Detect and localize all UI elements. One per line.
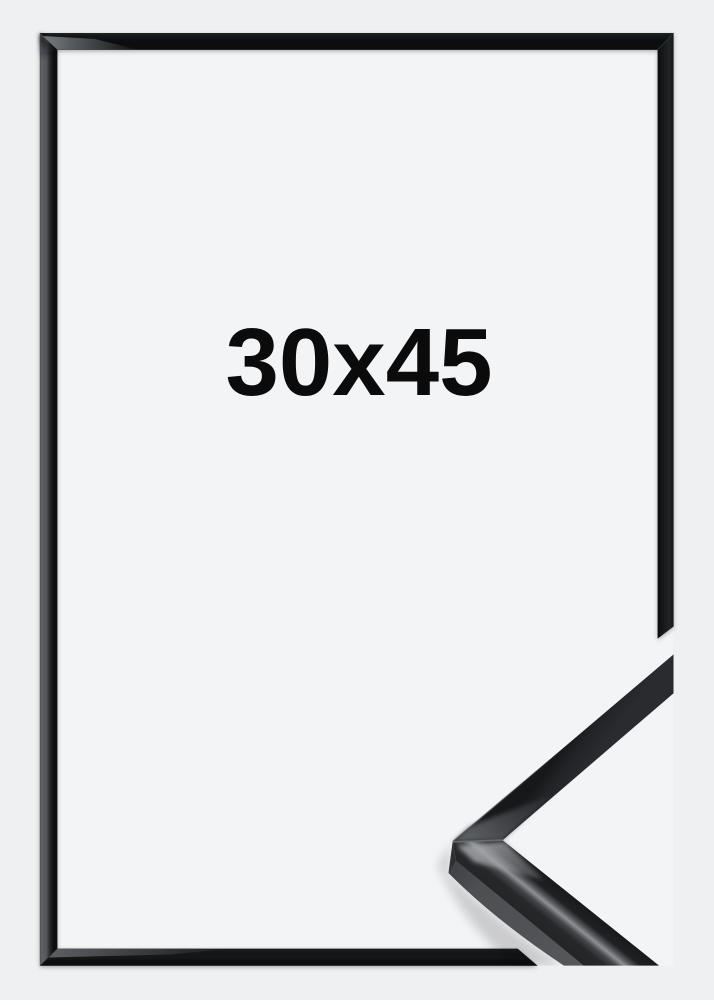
svg-text:30x45: 30x45 xyxy=(226,309,493,416)
